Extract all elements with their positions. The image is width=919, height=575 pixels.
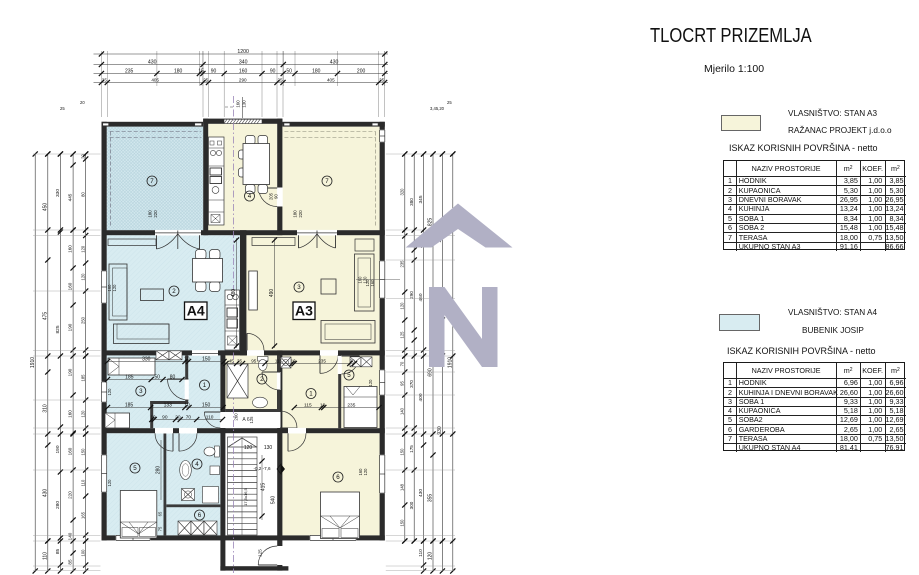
svg-text:115: 115 — [275, 358, 283, 363]
svg-text:120: 120 — [107, 479, 112, 487]
svg-text:460: 460 — [418, 293, 424, 301]
svg-text:3: 3 — [297, 284, 301, 291]
svg-text:120: 120 — [80, 273, 85, 281]
svg-text:10: 10 — [184, 356, 190, 362]
svg-text:450: 450 — [42, 203, 48, 212]
svg-text:7: 7 — [325, 178, 329, 185]
svg-text:200: 200 — [357, 68, 366, 74]
svg-text:25: 25 — [102, 77, 108, 82]
svg-text:290: 290 — [409, 291, 414, 299]
svg-text:405: 405 — [151, 77, 159, 82]
svg-text:160: 160 — [239, 68, 248, 74]
svg-text:280: 280 — [55, 501, 61, 509]
svg-text:185: 185 — [125, 374, 134, 380]
svg-text:25: 25 — [277, 77, 283, 82]
svg-text:120: 120 — [244, 445, 253, 451]
svg-text:20: 20 — [80, 100, 85, 105]
svg-text:175: 175 — [409, 445, 414, 453]
svg-text:345: 345 — [418, 195, 424, 203]
svg-text:4: 4 — [248, 193, 252, 200]
svg-text:130: 130 — [242, 100, 247, 108]
svg-text:95: 95 — [399, 381, 404, 386]
svg-text:95: 95 — [251, 358, 257, 363]
svg-text:185: 185 — [125, 402, 134, 408]
svg-text:2: 2 — [172, 288, 176, 295]
svg-text:400: 400 — [418, 393, 424, 401]
svg-text:160: 160 — [68, 410, 73, 418]
svg-text:1: 1 — [203, 382, 207, 389]
svg-text:25: 25 — [60, 106, 65, 111]
svg-text:10: 10 — [291, 358, 297, 363]
svg-text:260: 260 — [234, 413, 239, 421]
svg-text:140: 140 — [399, 407, 404, 415]
svg-text:235: 235 — [347, 402, 355, 408]
svg-text:85: 85 — [68, 559, 73, 565]
svg-text:7: 7 — [150, 178, 154, 185]
svg-text:85: 85 — [55, 549, 61, 555]
svg-text:-0,2 -7,6: -0,2 -7,6 — [253, 466, 271, 471]
svg-text:90: 90 — [270, 68, 276, 74]
svg-text:235: 235 — [399, 260, 404, 268]
svg-text:430: 430 — [418, 489, 424, 497]
svg-text:480: 480 — [231, 289, 237, 298]
svg-text:70: 70 — [186, 414, 192, 420]
svg-text:150: 150 — [202, 402, 211, 408]
svg-text:140: 140 — [68, 532, 73, 540]
svg-text:180: 180 — [293, 210, 298, 218]
svg-text:80: 80 — [170, 374, 176, 380]
svg-text:190: 190 — [68, 368, 73, 376]
svg-text:120: 120 — [365, 279, 370, 287]
svg-text:330: 330 — [55, 189, 61, 197]
svg-text:6: 6 — [198, 512, 202, 519]
svg-text:300: 300 — [409, 501, 414, 509]
svg-text:1: 1 — [309, 391, 313, 398]
svg-text:220: 220 — [298, 210, 303, 218]
svg-text:475: 475 — [42, 312, 48, 321]
svg-text:50: 50 — [286, 68, 292, 74]
svg-text:125: 125 — [258, 549, 263, 557]
svg-text:5: 5 — [347, 372, 351, 379]
svg-text:110: 110 — [80, 479, 85, 486]
svg-text:120: 120 — [399, 302, 404, 310]
svg-text:10: 10 — [320, 402, 326, 408]
svg-text:490: 490 — [269, 289, 275, 298]
svg-text:75: 75 — [158, 526, 163, 531]
svg-text:180: 180 — [312, 68, 321, 74]
svg-text:130: 130 — [264, 445, 273, 451]
svg-text:17,5x16,5: 17,5x16,5 — [243, 487, 248, 505]
svg-text:120: 120 — [428, 552, 434, 561]
svg-text:220: 220 — [68, 491, 73, 499]
svg-text:290: 290 — [239, 77, 247, 82]
svg-text:25: 25 — [379, 77, 385, 82]
svg-text:20: 20 — [350, 358, 356, 363]
svg-text:280: 280 — [155, 466, 161, 475]
svg-text:120: 120 — [363, 468, 368, 476]
svg-text:3,45,20: 3,45,20 — [430, 106, 445, 111]
svg-text:220: 220 — [153, 210, 158, 218]
svg-text:120: 120 — [107, 388, 112, 396]
svg-text:25: 25 — [447, 100, 452, 105]
svg-text:90: 90 — [162, 414, 168, 420]
svg-text:160: 160 — [68, 447, 73, 455]
svg-text:235: 235 — [318, 358, 326, 363]
svg-text:25: 25 — [237, 358, 243, 363]
svg-text:25: 25 — [203, 77, 209, 82]
svg-text:160: 160 — [370, 279, 375, 287]
svg-text:5: 5 — [133, 465, 137, 472]
svg-text:110: 110 — [42, 552, 48, 560]
svg-text:250: 250 — [80, 316, 85, 324]
svg-text:148: 148 — [399, 483, 404, 491]
svg-text:110: 110 — [418, 549, 424, 557]
svg-text:310: 310 — [42, 404, 48, 413]
svg-text:125: 125 — [249, 416, 254, 424]
svg-text:540: 540 — [271, 496, 277, 505]
svg-text:415: 415 — [261, 483, 267, 492]
svg-text:180: 180 — [148, 210, 153, 218]
svg-text:50: 50 — [154, 374, 160, 380]
svg-text:10: 10 — [150, 414, 156, 420]
svg-text:120: 120 — [80, 245, 85, 253]
svg-text:6: 6 — [336, 474, 340, 481]
svg-text:180: 180 — [174, 68, 183, 74]
svg-text:15: 15 — [198, 68, 204, 74]
svg-text:690: 690 — [428, 368, 434, 377]
svg-text:825: 825 — [55, 325, 61, 333]
svg-text:80: 80 — [80, 192, 85, 197]
svg-text:133: 133 — [164, 402, 173, 408]
svg-text:430: 430 — [330, 59, 339, 65]
svg-text:150: 150 — [202, 356, 211, 362]
svg-text:190: 190 — [68, 323, 73, 331]
svg-text:150: 150 — [80, 448, 85, 456]
svg-text:90: 90 — [211, 68, 217, 74]
svg-text:150: 150 — [399, 519, 404, 527]
svg-text:70: 70 — [399, 361, 404, 366]
svg-text:A4: A4 — [187, 303, 205, 319]
svg-text:65: 65 — [158, 511, 163, 516]
svg-text:120: 120 — [80, 410, 85, 418]
svg-text:4: 4 — [195, 461, 199, 468]
svg-text:90: 90 — [274, 194, 279, 199]
svg-text:125: 125 — [399, 331, 404, 339]
svg-text:370: 370 — [409, 380, 414, 388]
svg-text:10: 10 — [184, 402, 190, 408]
svg-text:100: 100 — [80, 549, 85, 557]
svg-text:160: 160 — [236, 100, 241, 108]
svg-text:190: 190 — [55, 445, 61, 453]
svg-text:160: 160 — [68, 282, 73, 290]
svg-text:380: 380 — [409, 198, 414, 206]
svg-text:120: 120 — [368, 379, 373, 387]
svg-text:185: 185 — [80, 374, 85, 382]
svg-text:430: 430 — [148, 59, 157, 65]
svg-text:930: 930 — [437, 426, 443, 435]
svg-text:165: 165 — [80, 511, 85, 519]
svg-text:2: 2 — [260, 376, 264, 383]
svg-text:430: 430 — [42, 489, 48, 498]
svg-text:405: 405 — [327, 77, 335, 82]
svg-text:330: 330 — [142, 356, 151, 362]
svg-text:340: 340 — [239, 59, 248, 65]
svg-text:A3: A3 — [295, 303, 313, 319]
svg-text:445: 445 — [68, 193, 73, 201]
svg-text:320: 320 — [399, 188, 404, 196]
svg-text:20: 20 — [175, 414, 181, 420]
svg-text:120: 120 — [112, 284, 117, 292]
svg-text:150: 150 — [399, 448, 404, 456]
svg-text:45: 45 — [229, 358, 235, 363]
svg-text:3: 3 — [139, 388, 143, 395]
svg-text:355: 355 — [428, 494, 434, 503]
svg-text:115: 115 — [304, 402, 312, 408]
svg-text:110: 110 — [206, 414, 214, 420]
svg-text:1910: 1910 — [30, 357, 36, 368]
svg-text:1200: 1200 — [237, 49, 249, 55]
svg-text:235: 235 — [125, 68, 134, 74]
svg-text:160: 160 — [68, 245, 73, 253]
